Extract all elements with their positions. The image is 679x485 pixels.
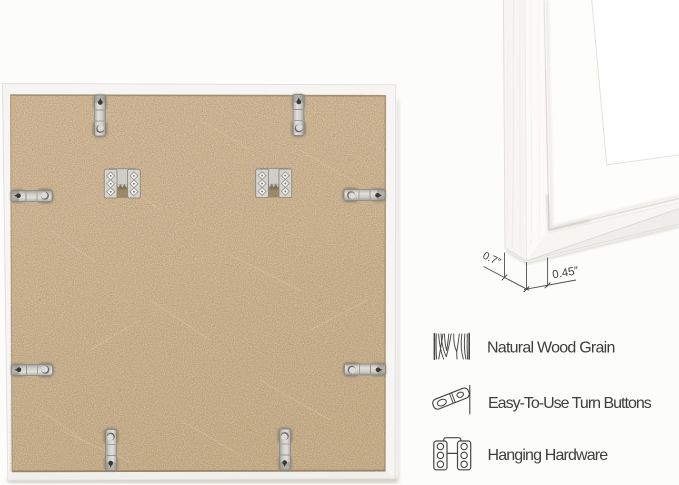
svg-text:Hanging Hardware: Hanging Hardware	[488, 447, 609, 464]
svg-text:Easy-To-Use Turn Buttons: Easy-To-Use Turn Buttons	[488, 395, 652, 412]
svg-text:Natural Wood Grain: Natural Wood Grain	[487, 340, 615, 357]
